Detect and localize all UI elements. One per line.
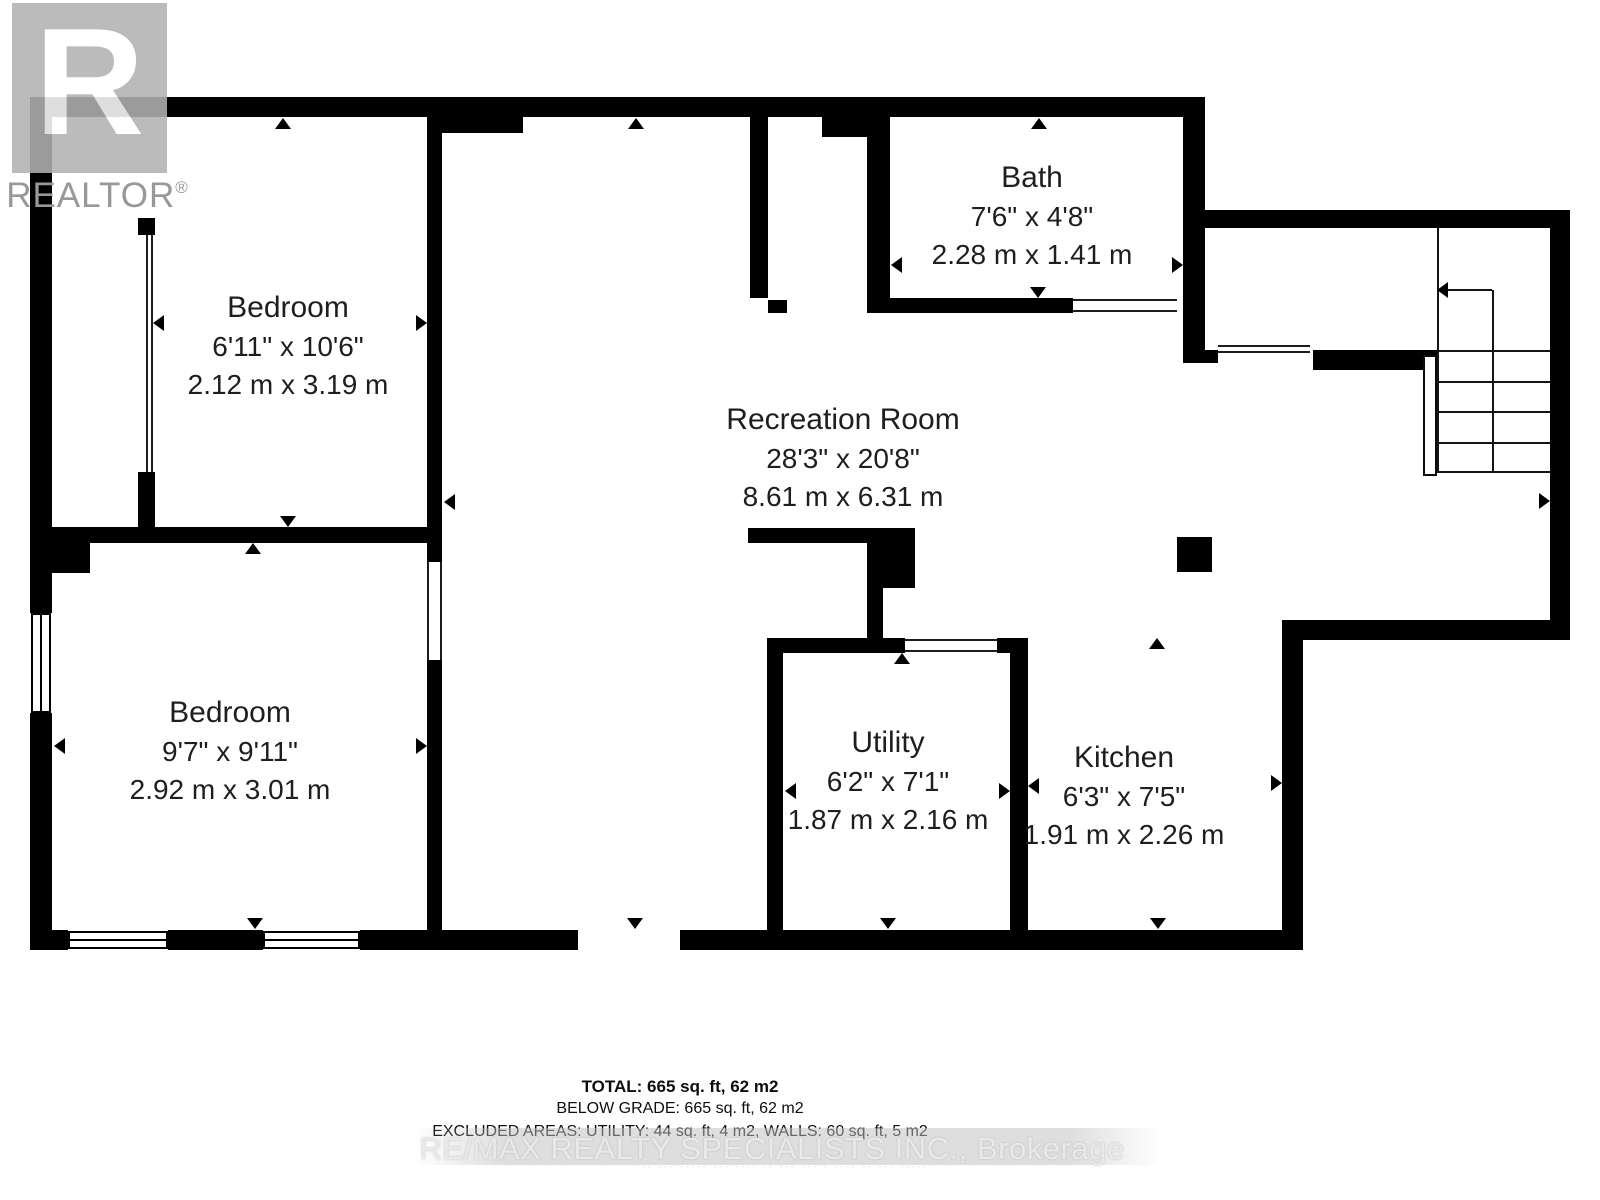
wall-segment [52, 527, 442, 543]
wall-opening [146, 235, 153, 472]
wall-segment [822, 115, 867, 137]
fine-print-text: ·· ··· ····· ··· ···· ·· ··· ··· · ···· … [641, 1161, 928, 1173]
stair-line [1445, 289, 1492, 291]
room-imperial-text: 6'2" x 7'1" [788, 763, 989, 801]
room-metric-text: 1.91 m x 2.26 m [1024, 816, 1225, 854]
realtor-wordmark: REALTOR® [0, 176, 195, 216]
room-label: Bath7'6" x 4'8"2.28 m x 1.41 m [932, 158, 1133, 274]
dimension-arrow-icon [1030, 287, 1046, 298]
dimension-arrow-icon [1437, 282, 1448, 298]
room-imperial-text: 28'3" x 20'8" [726, 440, 959, 478]
window [68, 931, 168, 949]
wall-segment [767, 653, 783, 930]
room-metric-text: 8.61 m x 6.31 m [726, 478, 959, 516]
dimension-arrow-icon [628, 118, 644, 129]
dimension-arrow-icon [1150, 918, 1166, 929]
dimension-arrow-icon [891, 257, 902, 273]
wall-opening [905, 639, 997, 652]
wall-segment [1282, 620, 1303, 950]
stair-line [1437, 442, 1550, 444]
wall-segment [30, 543, 90, 573]
wall-segment [1185, 350, 1218, 363]
dimension-arrow-icon [627, 918, 643, 929]
realtor-logo-icon: R [12, 3, 167, 173]
wall-segment [138, 472, 155, 527]
stair-line [1437, 471, 1550, 473]
wall-segment [427, 543, 442, 562]
wall-segment [890, 298, 1073, 313]
stair-line [1437, 350, 1550, 352]
wall-segment [360, 930, 578, 950]
room-metric-text: 2.92 m x 3.01 m [130, 771, 331, 809]
dimension-arrow-icon [1539, 493, 1550, 509]
wall-opening [1073, 299, 1177, 312]
wall-segment [30, 930, 68, 950]
wall-segment [1282, 620, 1570, 640]
room-name-text: Utility [788, 723, 989, 763]
room-label: Bedroom6'11" x 10'6"2.12 m x 3.19 m [188, 288, 389, 404]
dimension-arrow-icon [247, 918, 263, 929]
room-name-text: Bedroom [130, 693, 331, 733]
dimension-arrow-icon [894, 653, 910, 664]
wall-segment [30, 97, 1205, 117]
wall-segment [1183, 97, 1205, 363]
wall-segment [1177, 537, 1212, 572]
dimension-arrow-icon [444, 494, 455, 510]
dimension-arrow-icon [1271, 775, 1282, 791]
wall-segment [680, 930, 1303, 950]
room-name-text: Kitchen [1024, 738, 1225, 778]
dimension-arrow-icon [416, 738, 427, 754]
below-grade-text: BELOW GRADE: 665 sq. ft, 62 m2 [556, 1100, 803, 1118]
wall-opening [1218, 345, 1310, 353]
dimension-arrow-icon [153, 315, 164, 331]
dimension-arrow-icon [1149, 638, 1165, 649]
dimension-arrow-icon [1172, 257, 1183, 273]
dimension-arrow-icon [245, 543, 261, 554]
room-label: Bedroom9'7" x 9'11"2.92 m x 3.01 m [130, 693, 331, 809]
wall-segment [168, 930, 263, 950]
wall-opening [1423, 355, 1437, 476]
room-label: Utility6'2" x 7'1"1.87 m x 2.16 m [788, 723, 989, 839]
room-name-text: Recreation Room [726, 400, 959, 440]
room-metric-text: 1.87 m x 2.16 m [788, 801, 989, 839]
room-imperial-text: 6'3" x 7'5" [1024, 778, 1225, 816]
room-name-text: Bedroom [188, 288, 389, 328]
wall-segment [867, 528, 915, 588]
floorplan-drawing: Bedroom6'11" x 10'6"2.12 m x 3.19 mBath7… [0, 0, 1600, 1200]
wall-segment [768, 300, 787, 313]
room-metric-text: 2.28 m x 1.41 m [932, 236, 1133, 274]
room-imperial-text: 6'11" x 10'6" [188, 328, 389, 366]
total-area-text: TOTAL: 665 sq. ft, 62 m2 [582, 1077, 779, 1097]
dimension-arrow-icon [280, 516, 296, 527]
stair-line [1437, 381, 1550, 383]
dimension-arrow-icon [999, 783, 1010, 799]
room-label: Kitchen6'3" x 7'5"1.91 m x 2.26 m [1024, 738, 1225, 854]
stair-line [1437, 411, 1550, 413]
wall-segment [427, 115, 442, 543]
dimension-arrow-icon [1031, 118, 1047, 129]
wall-segment [1205, 210, 1570, 228]
dimension-arrow-icon [275, 118, 291, 129]
realtor-logo-letter: R [12, 0, 167, 167]
room-metric-text: 2.12 m x 3.19 m [188, 366, 389, 404]
dimension-arrow-icon [880, 918, 896, 929]
window [263, 931, 360, 949]
room-imperial-text: 9'7" x 9'11" [130, 733, 331, 771]
wall-segment [427, 660, 442, 950]
wall-segment [1313, 350, 1437, 370]
wall-opening [427, 562, 442, 660]
wall-segment [767, 638, 905, 653]
wall-segment [138, 218, 155, 235]
wall-segment [30, 97, 52, 613]
wall-segment [867, 115, 890, 313]
room-label: Recreation Room28'3" x 20'8"8.61 m x 6.3… [726, 400, 959, 516]
wall-segment [750, 115, 768, 298]
wall-segment [1550, 210, 1570, 640]
room-name-text: Bath [932, 158, 1133, 198]
dimension-arrow-icon [54, 738, 65, 754]
wall-segment [30, 713, 52, 950]
registered-trademark-icon: ® [175, 178, 189, 197]
floorplan-page: Bedroom6'11" x 10'6"2.12 m x 3.19 mBath7… [0, 0, 1600, 1200]
room-imperial-text: 7'6" x 4'8" [932, 198, 1133, 236]
window [31, 613, 51, 713]
dimension-arrow-icon [416, 315, 427, 331]
